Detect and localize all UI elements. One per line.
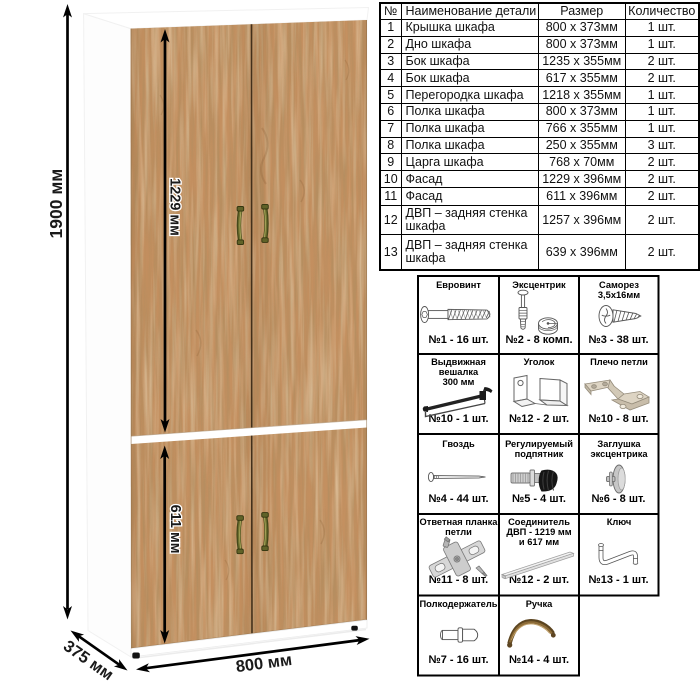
svg-text:611 мм: 611 мм [167, 505, 183, 554]
svg-text:1229 мм: 1229 мм [167, 178, 183, 236]
svg-text:1900 мм: 1900 мм [46, 169, 66, 239]
